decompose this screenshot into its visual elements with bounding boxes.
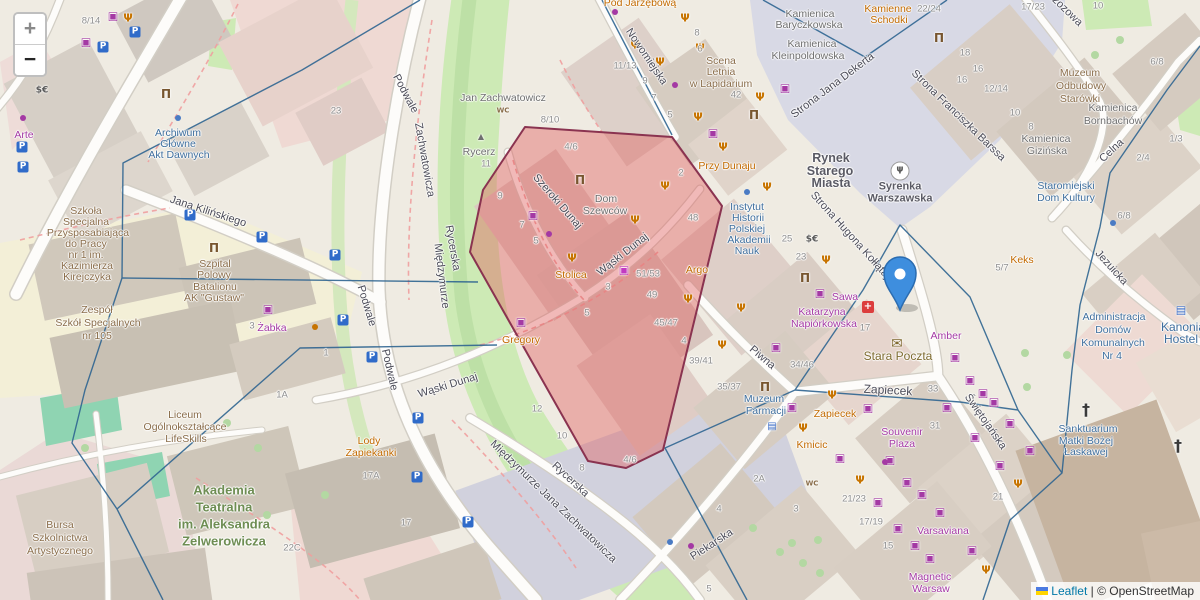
restaurant-icon: Ψ [660,181,669,192]
tree-dot [1021,349,1029,357]
jewelry-icon: ▣ [902,477,912,488]
map-label: Podwale [379,348,399,392]
parking-icon: P [367,352,378,363]
map-label: Teatralna [196,501,253,514]
map-label: 51/53 [636,269,660,279]
archive-icon: Π [161,88,171,100]
shop-icon: ▣ [263,304,273,315]
map-label: 5 [533,236,538,246]
poi-dot [688,543,694,549]
map-label: Miasta [812,177,851,190]
map-label: 6/8 [1117,211,1130,221]
map-label: 5 [584,308,589,318]
map-label: Zapiekanki [346,448,397,459]
gift-shop-icon: ▣ [989,397,999,408]
map-label: Świętojańska [962,392,1008,451]
map-label: 2A [753,474,765,484]
ticket-icon: ▤ [767,422,776,432]
tree-dot [776,548,784,556]
tree-dot [254,444,262,452]
map-label: Syrenka [879,182,922,193]
map-label: Wąski Dunaj [417,372,479,401]
restaurant-icon: Ψ [855,475,864,486]
map-label: Strona Hugona Kołłątaja [808,190,896,286]
zoom-in-button[interactable]: + [15,14,45,45]
shop-icon: ▣ [771,342,781,353]
map-label: Zelwerowicza [182,535,266,548]
parking-icon: P [463,517,474,528]
map-label: 17 [860,323,871,333]
map-label: 5 [667,110,672,120]
map-label: Przy Dunaju [698,161,755,172]
restaurant-icon: Ψ [718,142,727,153]
tree-dot [81,444,89,452]
map-label: Arte [14,130,33,141]
restaurant-icon: Ψ [630,215,639,226]
museum-icon: Π [760,381,770,393]
map-label: Instytut [730,202,764,213]
currency-exchange-icon: $€ [806,236,819,245]
map-label: 12/14 [984,84,1008,94]
restaurant-icon: Ψ [695,43,704,54]
map-label: Kirejczyka [63,272,111,283]
leaflet-link[interactable]: Leaflet [1051,584,1087,598]
ukraine-flag-icon [1036,587,1048,595]
clothes-shop-icon: ▣ [970,432,980,443]
map-label: 1A [276,390,288,400]
map-label: Katarzyna [798,307,845,318]
map-label: 48 [688,213,699,223]
map-label: 8 [579,463,584,473]
restaurant-icon: Ψ [655,57,664,68]
map-label: 22C [283,543,300,553]
map-label: Archiwum [155,128,201,139]
map-label: Nr 4 [1102,351,1122,362]
osm-link[interactable]: © OpenStreetMap [1097,584,1194,598]
map-label: 23 [796,252,807,262]
map-label: Zapiecek [814,409,857,420]
jewelry-icon: ▣ [965,375,975,386]
jewelry-icon: ▣ [995,460,1005,471]
map-label: Kamienica [1021,134,1070,145]
tree-dot [1063,351,1071,359]
map-label: Szkoła [70,206,102,217]
mail-icon: ✉ [891,337,903,351]
restaurant-icon: Ψ [827,390,836,401]
shop-icon: ▣ [108,11,118,22]
map-label: Gizińska [1027,146,1067,157]
church-cross-icon: † [1082,402,1090,418]
map-label: LifeSkills [165,434,206,445]
map-label: 4 [716,504,721,514]
map-label: 17A [363,471,380,481]
poi-dot [882,459,888,465]
map-label: Brzozowa [1042,0,1084,29]
currency-exchange-icon: $€ [36,87,49,96]
poi-dot [667,539,673,545]
jewelry-icon: ▣ [950,352,960,363]
map-label: Kamienica [785,9,834,20]
map-label: Akademia [193,484,254,497]
attribution-separator: | [1091,584,1094,598]
map-label: Jana Kilińskiego [168,194,247,229]
parking-icon: P [130,27,141,38]
tree-dot [1023,383,1031,391]
map-label: 16 [957,75,968,85]
map-label: Wąski Dunaj [595,232,650,279]
map-label: nr 105 [82,331,112,342]
book-shop-icon: ▣ [935,507,945,518]
zoom-out-button[interactable]: − [15,45,45,75]
restaurant-icon: Ψ [630,40,639,51]
map-label: 6 [697,44,702,54]
gift-shop-icon: ▣ [863,403,873,414]
map-label: 42 [731,90,742,100]
map-label: Amber [931,331,962,342]
map-label: 12 [532,404,543,414]
gift-shop-icon: ▣ [787,402,797,413]
cafe-icon: Ψ [736,303,745,314]
map-label: 8 [1028,122,1033,132]
map-label: 3 [249,321,254,331]
map-label: Szeroki Dunaj [530,173,583,232]
map-marker[interactable] [884,257,918,312]
map-tiles [0,0,1200,600]
map-label: Varsaviana [917,526,969,537]
art-shop-icon: ▣ [967,545,977,556]
map-label: Lody [358,436,381,447]
map-label: Matki Bożej [1059,436,1113,447]
map-label: 31 [930,421,941,431]
map-label: Podwale [355,284,378,328]
map-label: Piwna [747,344,777,372]
map-label: Rycerska [443,224,462,271]
bar-icon: Ψ [683,294,692,305]
map-label: Stolica [555,270,587,281]
museum-icon: Π [749,109,759,121]
map-label: 2/4 [1136,153,1149,163]
tree-dot [799,559,807,567]
gift-shop-icon: ▣ [978,388,988,399]
map-label: Akt Dawnych [148,150,209,161]
map-label: Hostel [1164,333,1198,345]
tree-dot [814,536,822,544]
parking-icon: P [185,210,196,221]
map-label: 35/37 [717,382,741,392]
map-label: Dom Kultury [1037,193,1095,204]
map-label: Jan Zachwatowicz [460,93,546,104]
restaurant-icon: Ψ [762,182,771,193]
map-label: 3 [605,282,610,292]
map-label: 8/14 [82,16,101,26]
hostel-icon: ▤ [1176,305,1186,316]
map-label: 2 [678,168,683,178]
parking-icon: P [17,142,28,153]
parking-icon: P [257,232,268,243]
gift-shop-icon: ▣ [1005,418,1015,429]
map-label: Kamienica [1088,103,1137,114]
map-label: Magnetic [909,572,952,583]
poi-dot [744,189,750,195]
map-label: 3 [793,504,798,514]
map-label: Sanktuarium [1059,424,1118,435]
restaurant-icon: Ψ [693,112,702,123]
map-label: 1 [323,348,328,358]
map-label-layer: NowomiejskaStrona Jana DekertaStrona Fra… [0,0,1200,600]
map-label: 4 [681,336,686,346]
map-label: Bursa [46,520,73,531]
poi-dot [1110,220,1116,226]
map-label: Letnia [707,67,736,78]
map-label: 21/23 [842,494,866,504]
museum-icon: Π [575,174,585,186]
map-label: 23 [331,106,342,116]
map-label: Kanonia [1161,321,1200,333]
tree-dot [749,524,757,532]
cafe-icon: Ψ [755,92,764,103]
map-label: Łaskawej [1064,447,1108,458]
map-label: Zapiecek [863,383,912,398]
gift-shop-icon: ▣ [873,497,883,508]
map-label: Kleinpoldowska [772,51,845,62]
map-label: 10 [1010,108,1021,118]
map-label: Kamienica [787,39,836,50]
marker-layer [0,0,1200,600]
first-aid-icon: + [862,301,874,313]
gift-shop-icon: ▣ [917,489,927,500]
map-label: 15 [883,541,894,551]
boundary-lines [72,0,1200,600]
art-shop-icon: ▣ [815,288,825,299]
map-label: im. Aleksandra [178,518,270,531]
parking-icon: P [413,413,424,424]
map-label: Szkolnictwa [32,533,87,544]
map-label: Baryczkowska [775,20,842,31]
map-label: 4/6 [564,142,577,152]
map-label: Scena [706,56,736,67]
map-label: Podwale [390,73,420,115]
book-shop-icon: ▣ [780,83,790,94]
map-label: Pod Jarzębową [604,0,676,8]
tree-dot [223,419,231,427]
map-label: 7 [519,220,524,230]
selection-polygon[interactable] [470,127,722,468]
map-label: Rycerz [463,147,496,158]
map-label: 21 [993,492,1004,502]
map-label: Kamienne [864,4,911,15]
map-label: 7 [651,93,656,103]
map-label: 25 [782,234,793,244]
map-label: 33 [928,384,939,394]
shop-icon: ▣ [528,210,538,221]
map-label: Specjalna [63,217,109,228]
poi-dot [20,115,26,121]
statue-icon: ψ [891,162,910,181]
map-label: Schodki [870,15,907,26]
map-label: Polskiej [729,224,765,235]
tree-dot [321,491,329,499]
poi-icon-layer: PPPPPPPPPPPPΨΨΨΨΨΨΨΨΨΨΨΨΨΨΨΨΨΨΨΨΨ▣▣▣▣▣▣▣… [0,0,1200,600]
map-label: 4/6 [623,455,636,465]
map-label: Staromiejski [1037,181,1094,192]
bar-icon: Ψ [717,340,726,351]
gift-shop-icon: ▣ [708,128,718,139]
map-label: 39/41 [689,356,713,366]
map-label: 9 [642,76,647,86]
shop-icon: ▣ [516,317,526,328]
map-label: Kmicic [797,440,828,451]
map-label: Międzymurze Jana Zachwatowicza [488,439,618,565]
map-label: Muzeum [744,394,784,405]
map-label: Domów [1095,325,1131,336]
gift-shop-icon: ▣ [910,540,920,551]
map-label: 18 [960,48,971,58]
map-label: Warsaw [912,584,950,595]
tree-dot [816,569,824,577]
map-label: Zespół [81,305,113,316]
parking-icon: P [18,162,29,173]
map-label: Rycerska [549,460,590,499]
map-label: Batalionu [193,282,237,293]
map-label: Starego [807,165,854,178]
map-label: Akademii [727,235,770,246]
map-label: Warszawska [867,194,932,205]
map-label: nr 1 im. [68,250,103,261]
map-label: Zachwatowicza [412,122,436,198]
map-label: Nowomiejska [623,27,669,87]
memorial-icon: Π [209,242,219,254]
map-label: Komunalnych [1081,338,1145,349]
map-label: Żabka [257,323,286,334]
map-label: Piekarska [689,527,735,563]
parking-icon: P [412,472,423,483]
map-label: 9 [497,191,502,201]
map-label: Nauk [735,246,760,257]
map-label: 5 [706,584,711,594]
map-label: 8/10 [541,115,560,125]
restaurant-icon: Ψ [567,253,576,264]
map-label: 11 [481,159,491,169]
map-label: Kazimierza [61,261,113,272]
map-label: Rynek [812,152,850,165]
bank-icon: Π [800,272,810,284]
poi-dot [546,231,552,237]
map-label: Strona Jana Dekerta [789,51,876,121]
toilets-icon: WC [806,481,819,488]
map-label: 17/19 [859,517,883,527]
map-label: 10 [1093,1,1104,11]
map-label: 10 [557,431,568,441]
map-label: Historii [732,213,764,224]
map-label: Bornbachów [1084,116,1142,127]
stationery-icon: ▣ [942,402,952,413]
candle-shop-icon: ▣ [1025,445,1035,456]
map-label: Odbudowy [1056,81,1106,92]
monument-icon: ▲ [478,133,484,141]
gift-shop-icon: ▣ [925,553,935,564]
map-label: 16 [973,64,984,74]
map-label: 17 [401,518,412,528]
toilets-icon: WC [497,108,510,115]
ice-cream-icon: Ψ [1013,479,1022,490]
map-label: 5/7 [995,263,1008,273]
map-label: Artystycznego [27,546,93,557]
map-label: Szewców [583,206,627,217]
map-label: Plaza [889,439,915,450]
map-label: Jezuicka [1093,248,1130,287]
map-label: Przysposabiająca [47,228,129,239]
poi-dot [612,9,618,15]
map-label: 17/23 [1021,2,1045,12]
map-label: Keks [1010,255,1033,266]
tree-dot [1116,36,1124,44]
gift-shop-icon: ▣ [619,265,629,276]
jewelry-icon: ▣ [893,523,903,534]
map-label: w Lapidarium [690,79,752,90]
zoom-control: + − [13,12,47,77]
map-label: Polowy [197,270,231,281]
map-label: Międzymurze [432,243,451,309]
map-label: Celna [1098,137,1127,165]
map-label: Strona Franciszka Barssa [909,68,1007,163]
map-label: Argo [686,265,708,276]
map-label: 22/24 [917,4,941,14]
map-label: do Pracy [65,239,106,250]
map-label: Szkół Specjalnych [55,318,140,329]
restaurant-icon: Ψ [798,423,807,434]
map-label: Napiórkowska [791,319,857,330]
art-shop-icon: ▣ [885,455,895,466]
map-label: 8 [694,28,699,38]
map-label: Starówki [1060,94,1100,105]
restaurant-icon: Ψ [680,13,689,24]
restaurant-icon: Ψ [123,13,132,24]
map-label: 1/3 [1169,134,1182,144]
map-label: 11/13 [613,61,636,71]
tree-dot [263,511,271,519]
map-canvas[interactable]: PPPPPPPPPPPPΨΨΨΨΨΨΨΨΨΨΨΨΨΨΨΨΨΨΨΨΨ▣▣▣▣▣▣▣… [0,0,1200,600]
map-label: Stara Poczta [864,350,933,362]
map-label: Souvenir [881,427,922,438]
map-label: Ogólnokształcące [144,422,227,433]
poi-dot [312,324,318,330]
attribution-bar: Leaflet | © OpenStreetMap [1031,582,1200,600]
poi-dot [672,82,678,88]
map-label: Gregory [502,335,540,346]
map-label: Administracja [1082,312,1145,323]
map-label: AK "Gustaw" [184,293,244,304]
shop-icon: ▣ [81,37,91,48]
restaurant-icon: Ψ [821,255,830,266]
parking-icon: P [330,250,341,261]
map-label: Sawa [832,292,858,303]
map-label: Szpital [199,259,231,270]
map-label: Farmacji [746,406,786,417]
museum-icon: Π [934,32,944,44]
map-label: Dom [595,194,617,205]
tree-dot [788,539,796,547]
poi-dot [175,115,181,121]
parking-icon: P [338,315,349,326]
map-label: 45/47 [654,318,678,328]
map-label: 49 [647,290,658,300]
gift-shop-icon: ▣ [835,453,845,464]
parking-icon: P [98,42,109,53]
map-label: 6/8 [1150,57,1163,67]
church-cross-icon: † [1174,438,1182,454]
buildings [4,0,1200,600]
map-label: 34/46 [790,360,814,370]
